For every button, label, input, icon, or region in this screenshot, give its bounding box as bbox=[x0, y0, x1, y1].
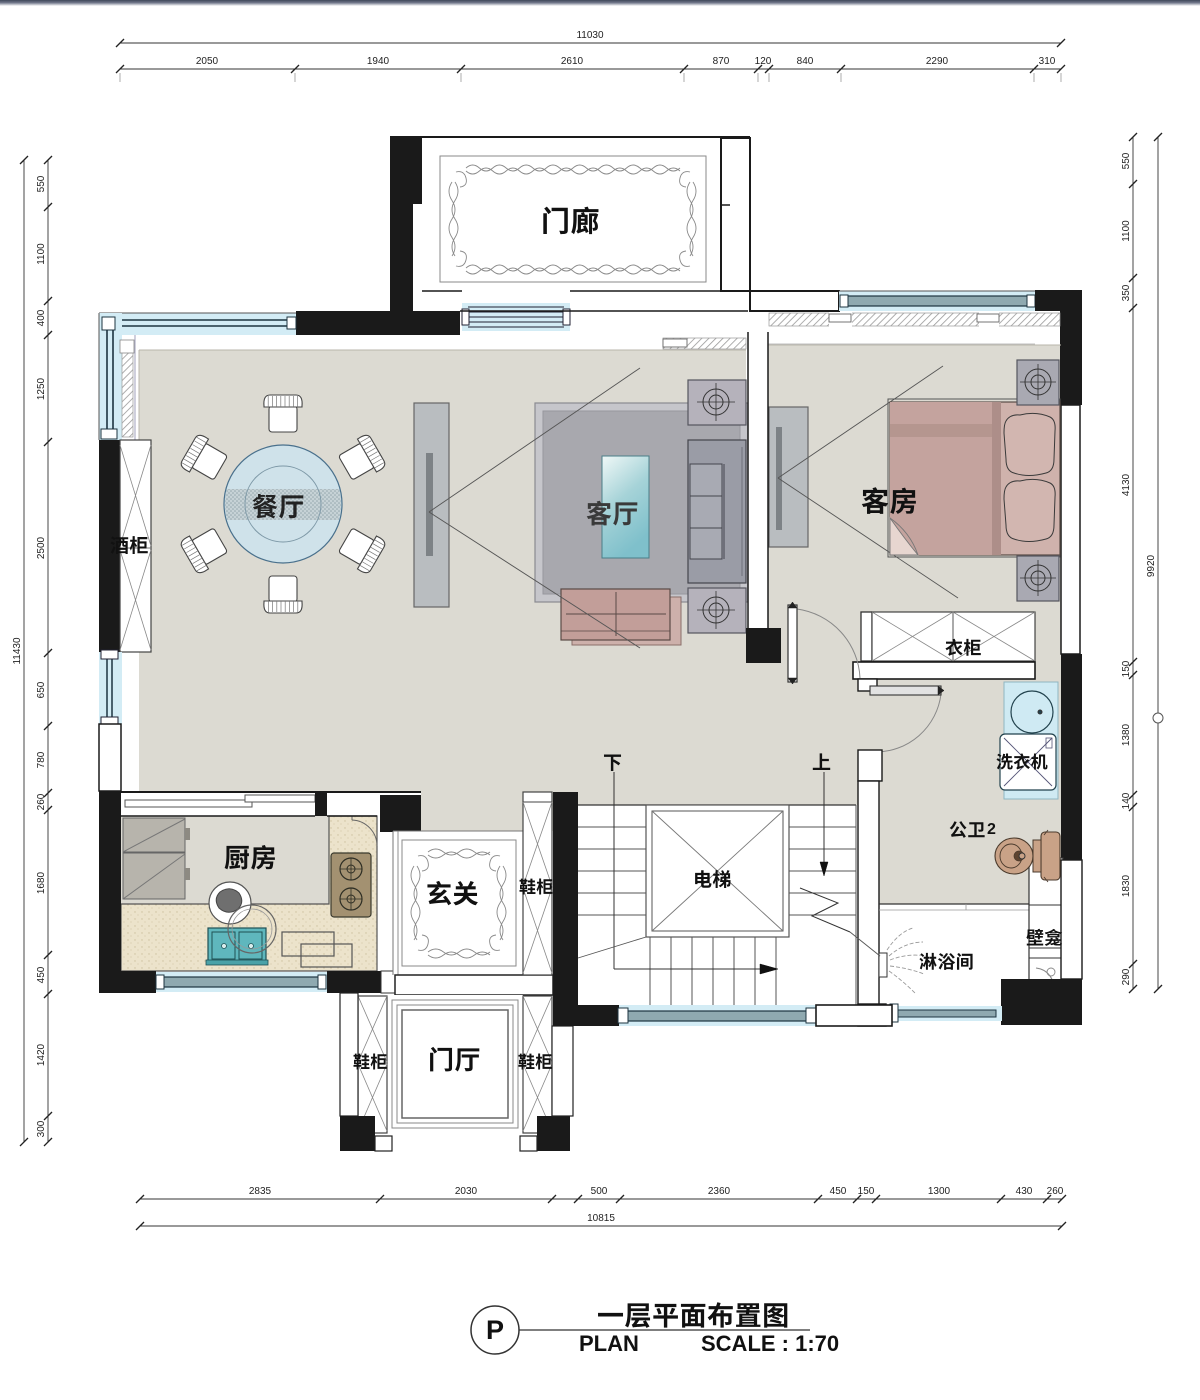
svg-text:840: 840 bbox=[797, 56, 814, 67]
svg-text:2835: 2835 bbox=[249, 1186, 272, 1197]
svg-text:550: 550 bbox=[36, 175, 47, 192]
svg-text:310: 310 bbox=[1039, 56, 1056, 67]
svg-text:500: 500 bbox=[591, 1186, 608, 1197]
svg-text:PLAN: PLAN bbox=[579, 1331, 639, 1356]
svg-text:430: 430 bbox=[1016, 1186, 1033, 1197]
svg-text:1250: 1250 bbox=[36, 377, 47, 400]
svg-text:350: 350 bbox=[1121, 284, 1132, 301]
svg-text:11430: 11430 bbox=[12, 637, 23, 665]
svg-text:450: 450 bbox=[830, 1186, 847, 1197]
svg-text:300: 300 bbox=[36, 1120, 47, 1137]
svg-text:2030: 2030 bbox=[455, 1186, 478, 1197]
svg-text:1940: 1940 bbox=[367, 56, 390, 67]
svg-text:450: 450 bbox=[36, 966, 47, 983]
svg-text:1100: 1100 bbox=[36, 243, 47, 265]
svg-text:2290: 2290 bbox=[926, 56, 949, 67]
svg-text:260: 260 bbox=[1047, 1186, 1064, 1197]
svg-text:1830: 1830 bbox=[1121, 874, 1132, 897]
svg-text:2360: 2360 bbox=[708, 1186, 731, 1197]
svg-text:2610: 2610 bbox=[561, 56, 584, 67]
svg-text:650: 650 bbox=[36, 681, 47, 698]
svg-text:870: 870 bbox=[713, 56, 730, 67]
svg-text:260: 260 bbox=[36, 793, 47, 810]
svg-text:290: 290 bbox=[1121, 968, 1132, 985]
svg-text:1100: 1100 bbox=[1121, 220, 1132, 242]
svg-text:1680: 1680 bbox=[36, 871, 47, 894]
svg-text:SCALE : 1:70: SCALE : 1:70 bbox=[701, 1331, 839, 1356]
svg-text:150: 150 bbox=[1121, 660, 1132, 677]
svg-text:9920: 9920 bbox=[1146, 554, 1157, 577]
svg-text:2050: 2050 bbox=[196, 56, 219, 67]
svg-text:400: 400 bbox=[36, 309, 47, 326]
svg-text:150: 150 bbox=[858, 1186, 875, 1197]
svg-text:2500: 2500 bbox=[36, 536, 47, 559]
svg-text:1380: 1380 bbox=[1121, 723, 1132, 746]
svg-text:120: 120 bbox=[755, 56, 772, 67]
svg-text:780: 780 bbox=[36, 751, 47, 768]
svg-text:2: 2 bbox=[987, 821, 996, 838]
svg-text:4130: 4130 bbox=[1121, 473, 1132, 496]
svg-text:550: 550 bbox=[1121, 152, 1132, 169]
svg-text:P: P bbox=[486, 1315, 504, 1345]
svg-text:140: 140 bbox=[1121, 792, 1132, 809]
svg-text:1300: 1300 bbox=[928, 1186, 951, 1197]
svg-text:10815: 10815 bbox=[587, 1213, 615, 1224]
svg-text:1420: 1420 bbox=[36, 1043, 47, 1066]
svg-text:11030: 11030 bbox=[576, 30, 604, 41]
